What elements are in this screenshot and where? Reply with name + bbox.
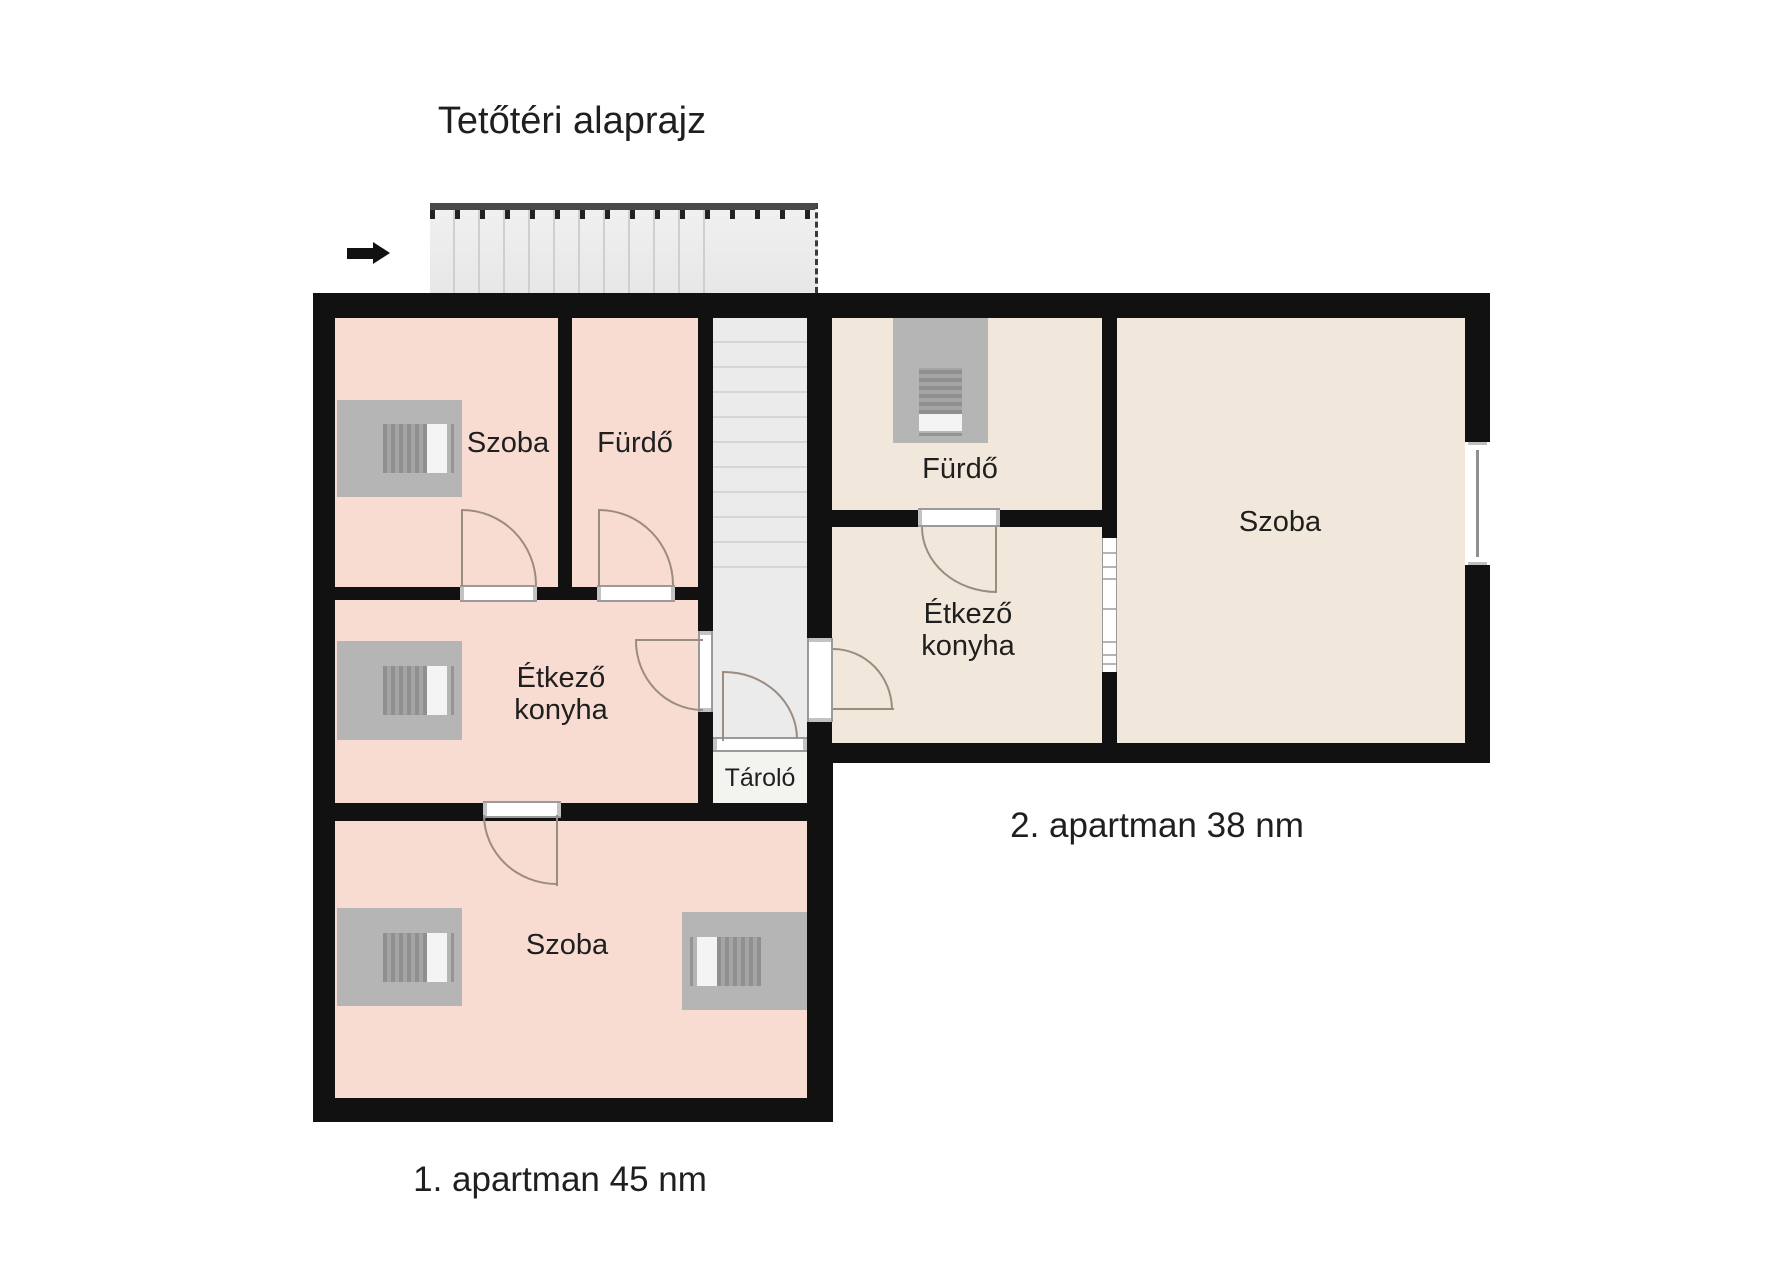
door-leaf-apt1-szoba-bottom xyxy=(556,815,558,886)
window-apt2-right-wall xyxy=(1465,442,1490,565)
door-leaf-apt2-furdo xyxy=(995,527,997,593)
room-label-apt1-szoba-bottom: Szoba xyxy=(517,929,617,961)
entry-arrow-head xyxy=(373,242,390,264)
room-label-apt1-furdo: Fürdő xyxy=(585,427,685,459)
wall-shaft-left xyxy=(698,318,713,803)
entry-arrow-body xyxy=(347,248,373,259)
apartment2-label: 2. apartman 38 nm xyxy=(982,806,1332,846)
room-label-apt2-szoba: Szoba xyxy=(1230,506,1330,538)
wall-apt1-lower xyxy=(315,803,833,821)
room-label-apt2-furdo: Fürdő xyxy=(910,453,1010,485)
floor-plan: Tetőtéri alaprajz xyxy=(0,0,1779,1280)
roof-window-icon xyxy=(682,912,807,1010)
room-label-tarolo: Tároló xyxy=(713,764,807,792)
wall-apt2-divider xyxy=(1102,318,1117,743)
room-label-apt1-etkezo-konyha: Étkező konyha xyxy=(485,662,637,727)
roof-window-icon xyxy=(893,318,988,443)
wall-apt2-bottom xyxy=(807,743,1490,763)
page-title: Tetőtéri alaprajz xyxy=(422,100,722,143)
room-label-apt2-etkezo-konyha: Étkező konyha xyxy=(892,598,1044,663)
room-label-apt1-szoba-top: Szoba xyxy=(458,427,558,459)
wall-bottom-apt1 xyxy=(313,1098,833,1122)
door-leaf-landing-apt2 xyxy=(833,708,894,710)
door-frame-landing-apt2 xyxy=(807,638,833,722)
apartment1-label: 1. apartman 45 nm xyxy=(385,1160,735,1200)
staircase-run-icon xyxy=(430,203,818,293)
roof-window-icon xyxy=(337,641,462,740)
door-frame-apt1-szoba-top xyxy=(460,585,537,602)
staircase-ticks xyxy=(430,210,815,219)
staircase-shaft-steps xyxy=(713,318,807,570)
door-frame-tarolo xyxy=(713,737,807,752)
door-leaf-landing-apt1 xyxy=(635,639,703,641)
door-frame-apt2-furdo xyxy=(918,508,1000,527)
window-apt2-internal xyxy=(1102,538,1117,672)
wall-apt1-szoba-furdo-divider xyxy=(558,318,572,587)
roof-window-icon xyxy=(337,400,462,497)
wall-top xyxy=(313,293,1490,318)
door-leaf-tarolo xyxy=(722,671,724,741)
wall-left xyxy=(313,293,335,1122)
door-leaf-apt1-szoba-top xyxy=(461,509,463,586)
door-leaf-apt1-furdo xyxy=(598,509,600,586)
door-frame-apt1-furdo xyxy=(597,585,675,602)
roof-window-icon xyxy=(337,908,462,1006)
staircase-steps xyxy=(430,210,715,293)
